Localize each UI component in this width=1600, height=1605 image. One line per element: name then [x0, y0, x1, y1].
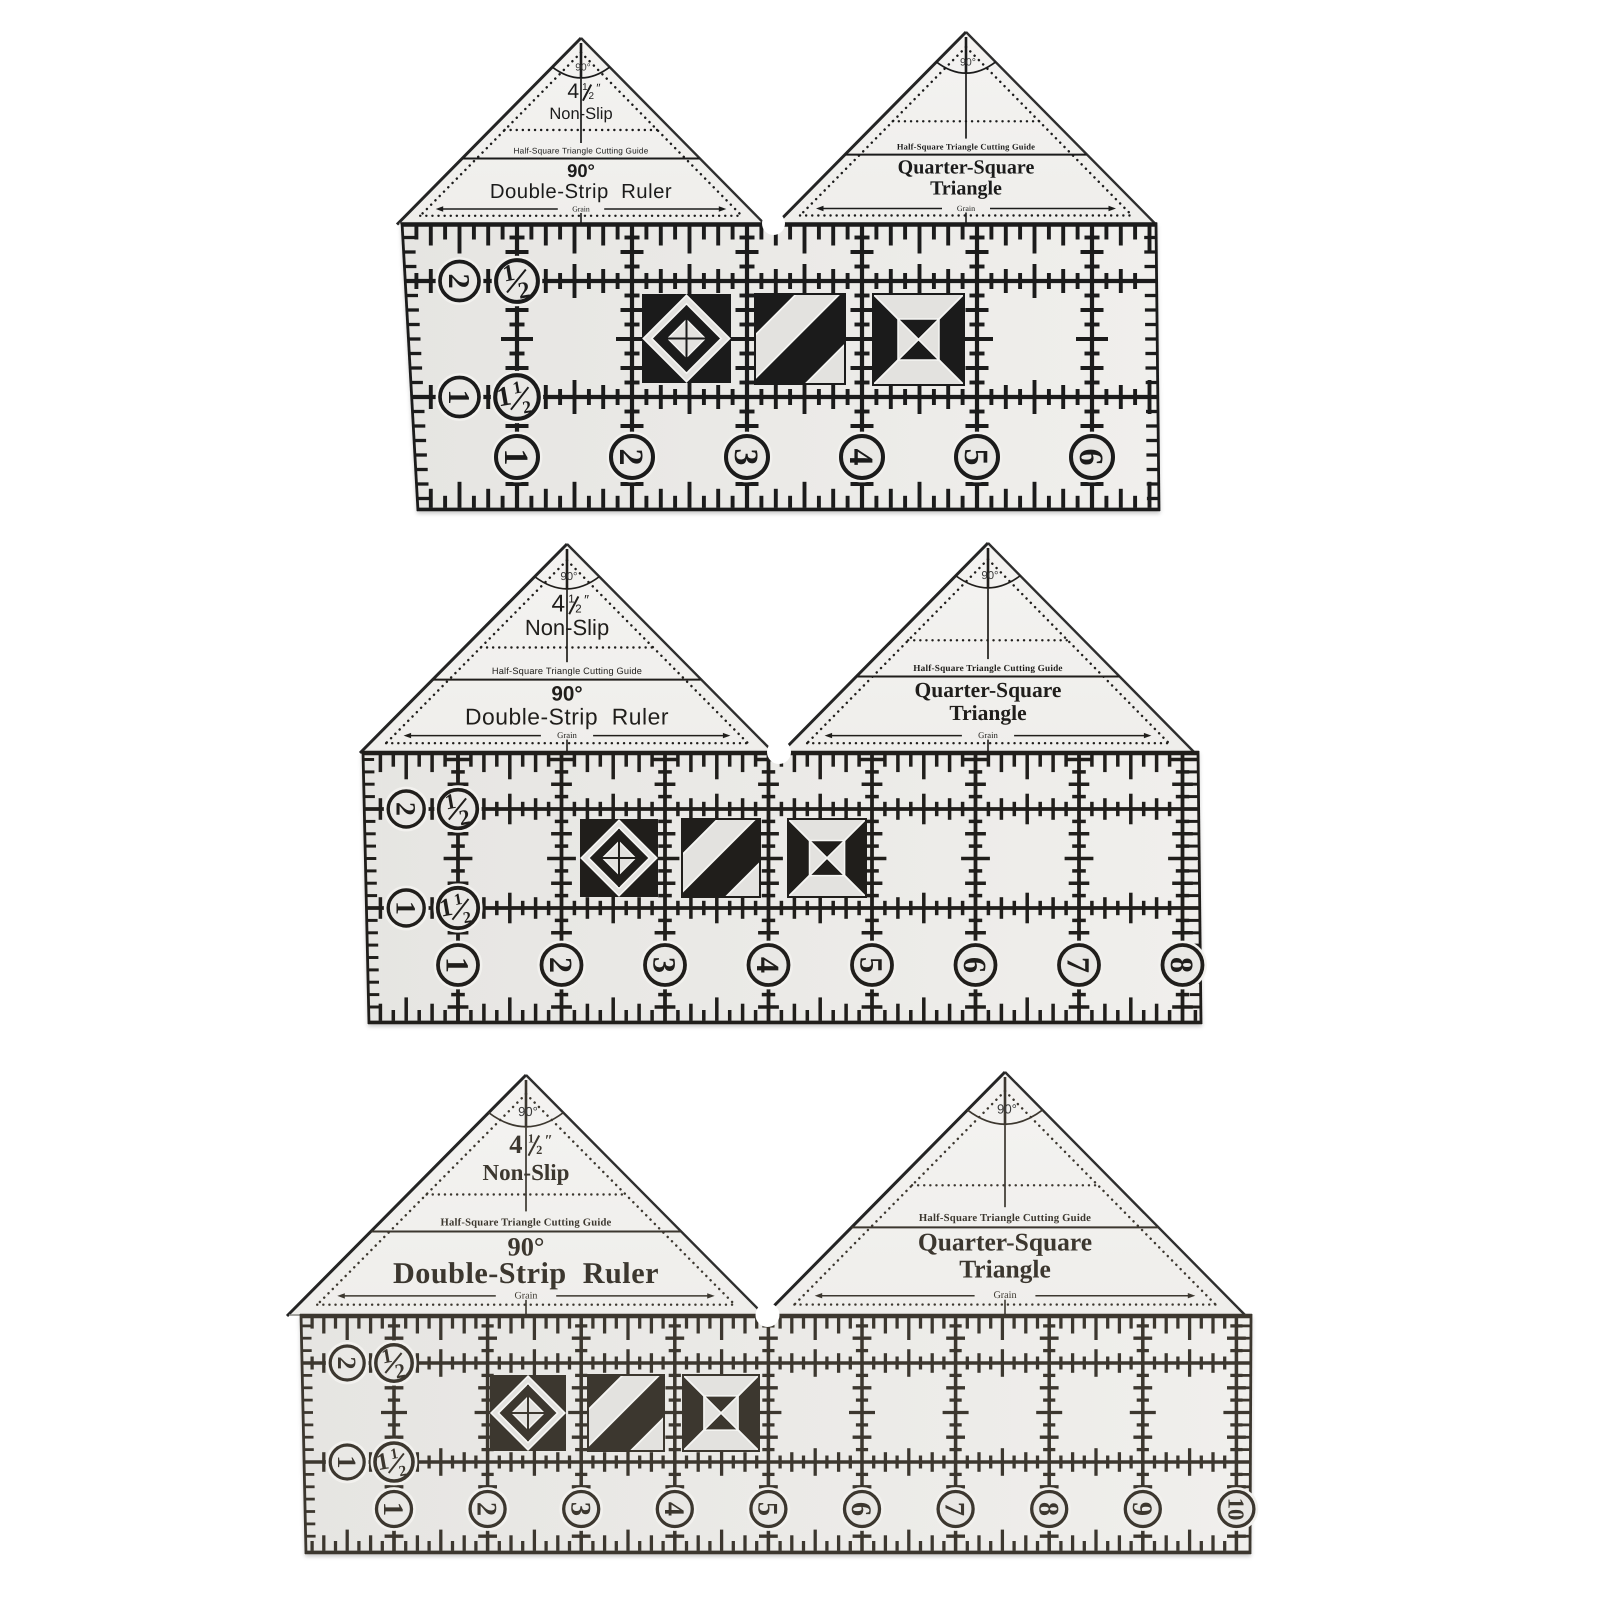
svg-text:Grain: Grain [572, 205, 590, 214]
svg-text:Double-Strip Ruler: Double-Strip Ruler [490, 181, 672, 203]
svg-text:1: 1 [389, 901, 420, 915]
svg-text:9: 9 [1126, 1502, 1157, 1516]
svg-text:Triangle: Triangle [930, 178, 1002, 200]
svg-text:5: 5 [957, 448, 994, 465]
svg-text:10: 10 [1223, 1498, 1248, 1521]
svg-text:Half-Square Triangle Cutting G: Half-Square Triangle Cutting Guide [514, 147, 649, 156]
svg-text:Grain: Grain [978, 730, 998, 740]
svg-text:90°: 90° [575, 62, 590, 73]
svg-text:Non-Slip: Non-Slip [525, 615, 609, 640]
svg-text:90°: 90° [560, 571, 577, 583]
svg-text:Grain: Grain [957, 204, 975, 213]
svg-text:Non-Slip: Non-Slip [483, 1160, 570, 1185]
svg-text:90°: 90° [960, 56, 976, 68]
svg-text:90°: 90° [981, 570, 998, 582]
svg-text:Half-Square Triangle Cutting G: Half-Square Triangle Cutting Guide [897, 142, 1035, 152]
svg-text:1: 1 [439, 957, 475, 973]
svg-text:Quarter-Square: Quarter-Square [915, 678, 1062, 702]
svg-text:Grain: Grain [557, 730, 577, 740]
svg-text:2: 2 [612, 448, 649, 465]
svg-text:Double-Strip Ruler: Double-Strip Ruler [393, 1256, 659, 1290]
svg-text:4: 4 [509, 1129, 522, 1159]
svg-text:6: 6 [956, 957, 992, 973]
svg-text:Grain: Grain [515, 1290, 538, 1301]
svg-text:2: 2 [471, 1502, 502, 1516]
svg-text:Triangle: Triangle [949, 701, 1026, 725]
svg-text:Double-Strip Ruler: Double-Strip Ruler [465, 703, 669, 729]
svg-text:2: 2 [536, 1143, 542, 1157]
svg-text:4: 4 [658, 1502, 689, 1516]
svg-text:″: ″ [584, 592, 589, 608]
svg-text:Half-Square Triangle Cutting G: Half-Square Triangle Cutting Guide [441, 1217, 612, 1228]
svg-text:8: 8 [1032, 1502, 1063, 1516]
svg-text:1: 1 [377, 1502, 408, 1516]
svg-text:Grain: Grain [993, 1290, 1016, 1301]
svg-text:2: 2 [588, 91, 594, 102]
svg-text:4: 4 [552, 591, 566, 618]
svg-text:1: 1 [442, 389, 476, 404]
svg-text:8: 8 [1163, 957, 1199, 973]
svg-text:1: 1 [582, 82, 588, 93]
svg-text:5: 5 [853, 957, 889, 973]
svg-text:4: 4 [567, 80, 579, 103]
svg-text:7: 7 [939, 1502, 970, 1516]
svg-text:2: 2 [332, 1356, 361, 1369]
svg-text:6: 6 [1072, 448, 1109, 465]
svg-text:2: 2 [575, 604, 581, 616]
svg-text:Quarter-Square: Quarter-Square [898, 157, 1035, 179]
svg-text:Half-Square Triangle Cutting G: Half-Square Triangle Cutting Guide [913, 663, 1062, 674]
svg-text:4: 4 [842, 448, 879, 465]
svg-text:1: 1 [332, 1455, 361, 1468]
svg-text:1: 1 [568, 593, 574, 605]
svg-text:90°: 90° [567, 160, 595, 181]
svg-text:4: 4 [749, 957, 785, 973]
svg-text:Half-Square Triangle Cutting G: Half-Square Triangle Cutting Guide [919, 1212, 1091, 1224]
svg-text:3: 3 [727, 448, 764, 465]
svg-text:Half-Square Triangle Cutting G: Half-Square Triangle Cutting Guide [492, 666, 642, 676]
svg-text:6: 6 [845, 1502, 876, 1516]
svg-text:1: 1 [528, 1132, 534, 1146]
svg-text:90°: 90° [551, 682, 582, 705]
svg-text:Quarter-Square: Quarter-Square [918, 1228, 1092, 1257]
svg-text:3: 3 [646, 957, 682, 973]
svg-text:3: 3 [564, 1502, 595, 1516]
svg-text:Triangle: Triangle [959, 1254, 1051, 1283]
svg-text:″: ″ [544, 1133, 552, 1149]
svg-text:2: 2 [542, 957, 578, 973]
svg-text:90°: 90° [518, 1104, 538, 1119]
svg-text:5: 5 [752, 1502, 783, 1516]
svg-text:90°: 90° [997, 1101, 1017, 1116]
svg-text:Non-Slip: Non-Slip [549, 105, 612, 123]
svg-text:2: 2 [389, 802, 420, 816]
svg-text:2: 2 [442, 273, 476, 288]
svg-text:7: 7 [1060, 957, 1096, 973]
svg-text:1: 1 [497, 448, 534, 465]
svg-text:″: ″ [596, 81, 601, 95]
